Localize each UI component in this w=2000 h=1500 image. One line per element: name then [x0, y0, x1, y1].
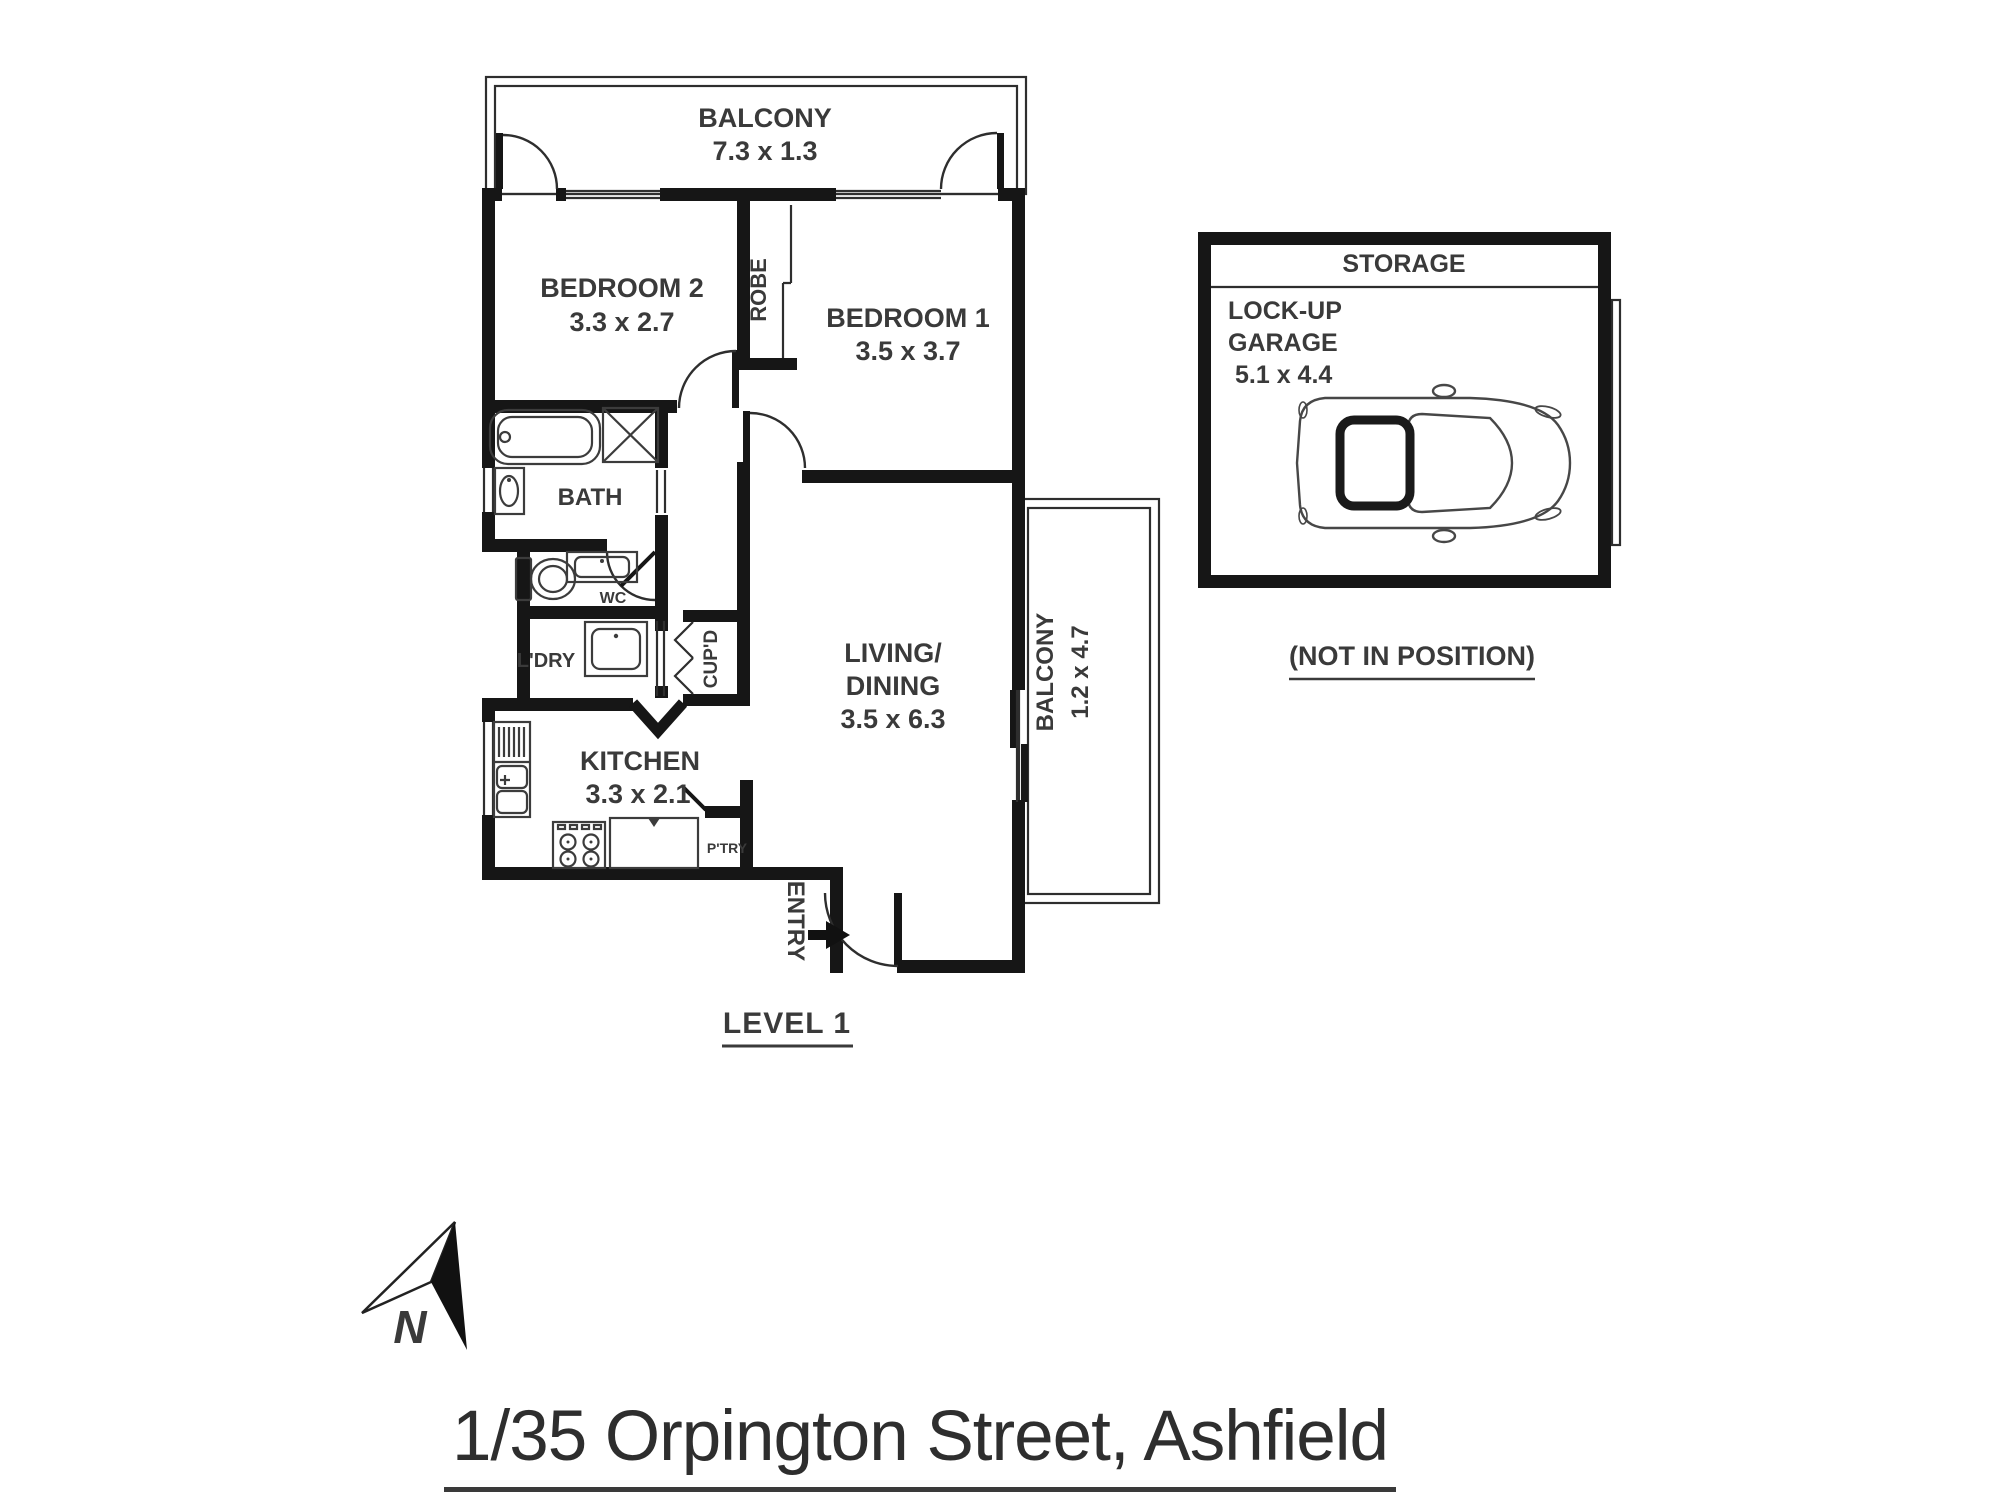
door-swing-arc	[750, 413, 805, 468]
room-label-wc: WC	[600, 590, 627, 607]
room-dims-bedroom1: 3.5 x 3.7	[855, 336, 960, 366]
room-dims-bedroom2: 3.3 x 2.7	[569, 307, 674, 337]
balcony-door-leaf-right	[997, 133, 1004, 189]
room-label-bedroom1: BEDROOM 1	[826, 303, 990, 333]
bath-vanity-icon	[495, 468, 524, 514]
garage-label-line2: GARAGE	[1228, 329, 1338, 357]
kitchen-sink-icon	[494, 722, 530, 817]
laundry-tub-icon	[585, 622, 647, 676]
address-title: 1/35 Orpington Street, Ashfield	[444, 1396, 1396, 1492]
stove-icon	[553, 822, 605, 868]
laundry-door-opening	[657, 621, 664, 696]
floorplan-page: N BALCONY 7.3 x 1.3 BEDROOM 2 3.3 x 2.7 …	[0, 0, 2000, 1500]
kitchen-bench-icon	[610, 818, 698, 868]
room-label-pantry: P'TRY	[707, 840, 748, 856]
room-label-balcony-side: BALCONY	[1032, 613, 1059, 732]
wc-basin-icon	[567, 552, 637, 582]
door-swing-arc	[679, 351, 736, 408]
entry-door-leaf	[894, 893, 902, 967]
room-label-laundry: L'DRY	[517, 650, 576, 672]
robe-shelf-line	[783, 205, 791, 358]
room-label-balcony-top: BALCONY	[698, 103, 832, 133]
room-dims-balcony-side: 1.2 x 4.7	[1067, 625, 1094, 718]
room-label-kitchen: KITCHEN	[580, 746, 700, 776]
bedroom2-door-leaf	[732, 350, 739, 408]
room-label-living-line1: LIVING/	[844, 638, 942, 668]
garage-label-line1: LOCK-UP	[1228, 297, 1342, 325]
garage-note: (NOT IN POSITION)	[1289, 641, 1535, 671]
door-swing-arc	[503, 135, 557, 189]
room-label-cupboard: CUP'D	[701, 630, 722, 688]
car-icon	[1297, 385, 1570, 542]
door-swing-arc	[941, 133, 997, 189]
garage-storage-label: STORAGE	[1342, 250, 1465, 278]
cupboard-bifold-doors	[675, 622, 693, 694]
garage-roller-door	[1612, 300, 1620, 545]
room-label-living-line2: DINING	[846, 671, 941, 701]
room-dims-living: 3.5 x 6.3	[840, 704, 945, 734]
bathtub-icon	[490, 410, 600, 464]
room-dims-kitchen: 3.3 x 2.1	[585, 779, 690, 809]
north-label: N	[393, 1301, 427, 1353]
room-dims-balcony-top: 7.3 x 1.3	[712, 136, 817, 166]
room-label-entry: ENTRY	[782, 881, 809, 961]
balcony-door-leaf-left	[496, 133, 503, 189]
garage	[1198, 232, 1620, 588]
room-label-bedroom2: BEDROOM 2	[540, 273, 704, 303]
north-arrow-icon: N	[362, 1222, 467, 1353]
garage-dims: 5.1 x 4.4	[1235, 361, 1332, 389]
level-label: LEVEL 1	[723, 1007, 851, 1040]
entry-arrow-icon	[808, 921, 850, 949]
room-label-robe: ROBE	[746, 258, 771, 322]
bedroom1-door-leaf	[743, 411, 750, 468]
kitchen-opening-jambs	[633, 703, 683, 731]
floor-plan-canvas: N BALCONY 7.3 x 1.3 BEDROOM 2 3.3 x 2.7 …	[0, 0, 2000, 1500]
bath-door-opening	[657, 470, 665, 513]
room-label-bath: BATH	[558, 484, 623, 511]
shower-icon	[603, 408, 658, 462]
